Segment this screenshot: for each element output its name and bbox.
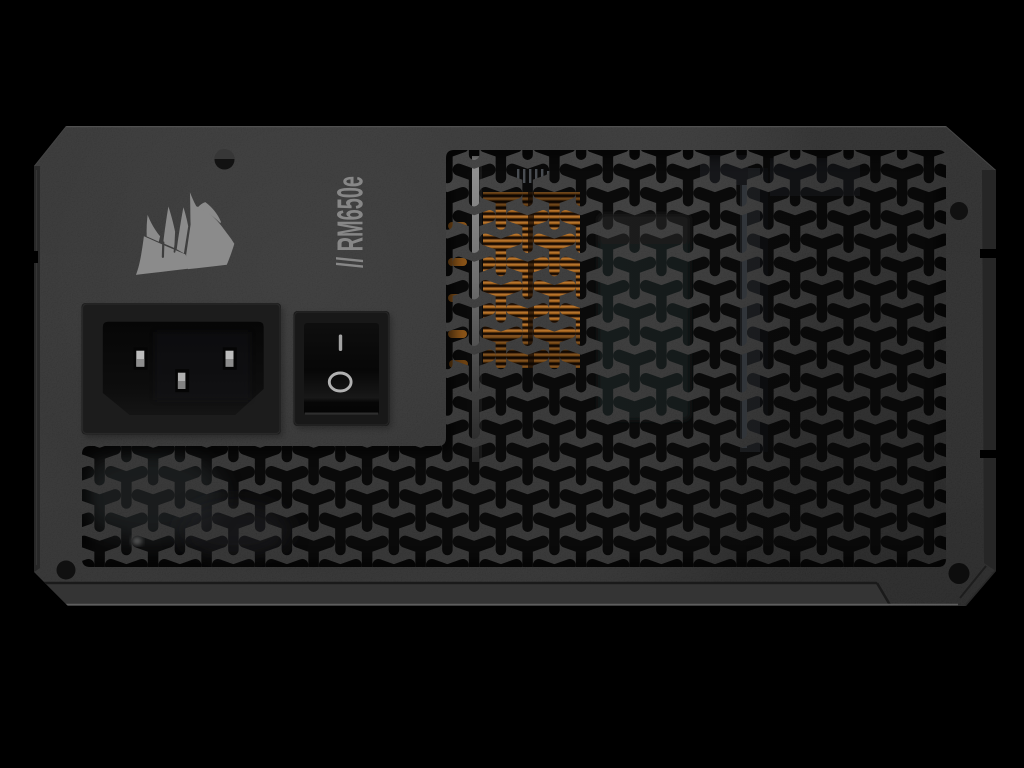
svg-text:// RM650e: // RM650e	[330, 176, 371, 268]
